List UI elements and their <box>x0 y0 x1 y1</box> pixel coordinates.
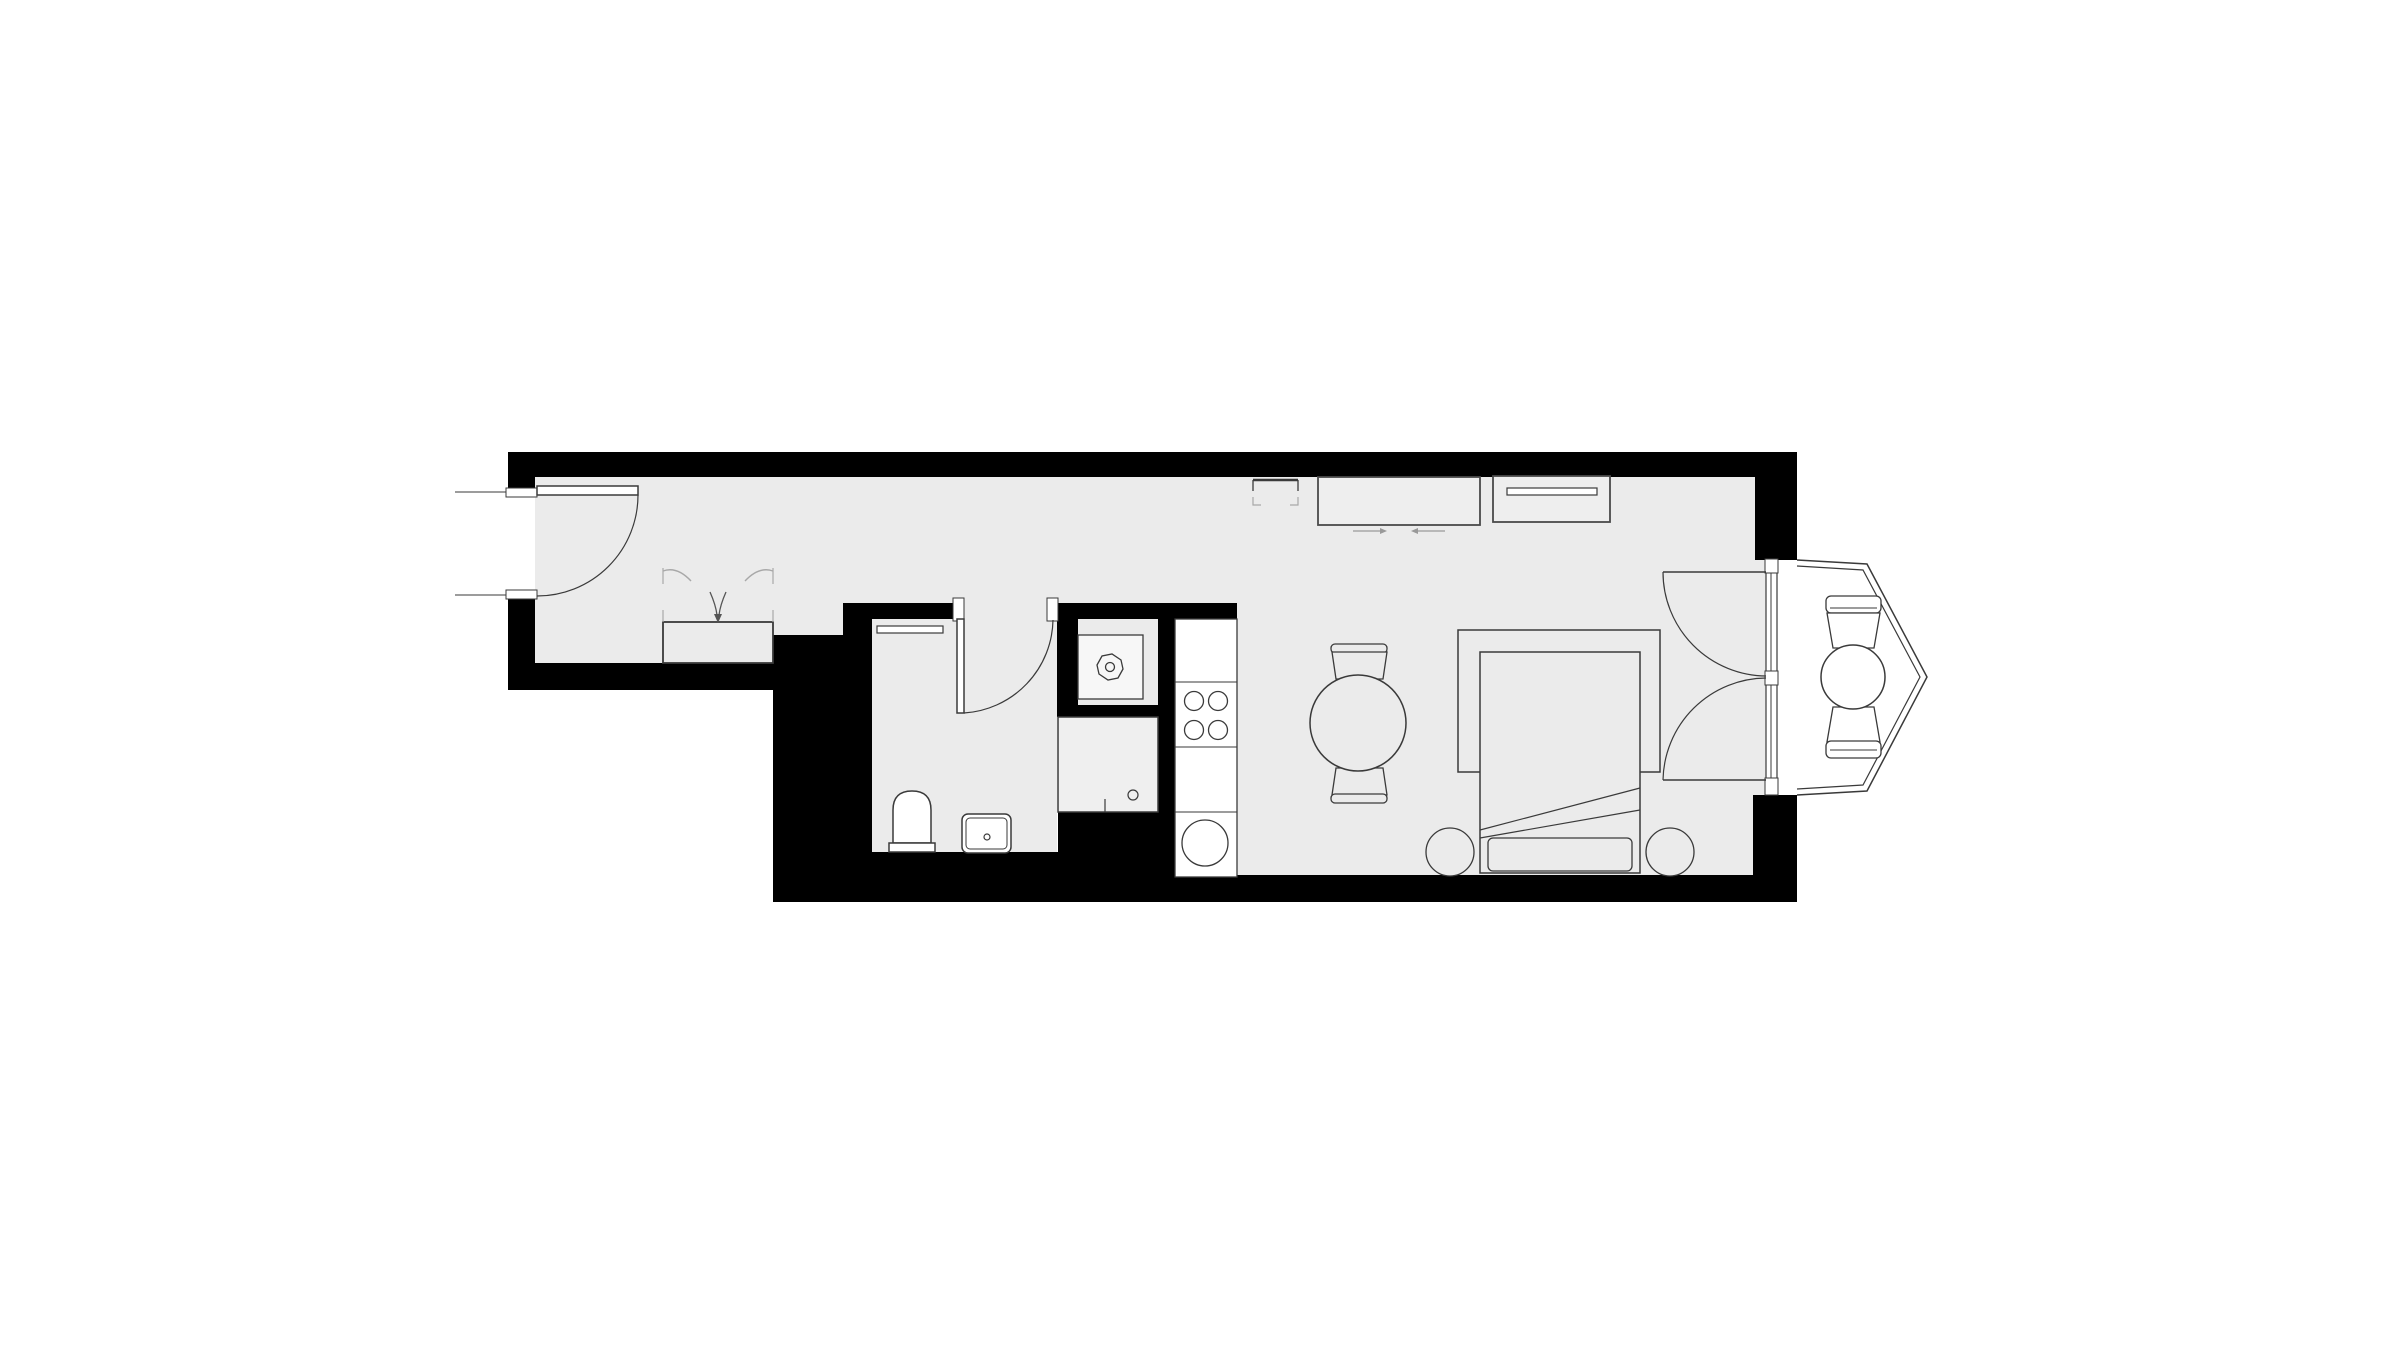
wall-shower-left <box>1057 619 1078 705</box>
bathroom-jamb-left <box>953 598 964 621</box>
tv <box>1507 488 1597 495</box>
nightstand-left <box>1426 828 1474 876</box>
entrance-jamb-top <box>506 488 537 497</box>
floor-plan-page <box>0 0 2400 1349</box>
tv-stand <box>1493 476 1610 522</box>
entrance-jamb-bottom <box>506 590 537 599</box>
toilet-bowl <box>893 791 931 843</box>
window-jamb-mid <box>1765 671 1778 685</box>
bath-shelf <box>877 626 943 633</box>
wall-bottom <box>1175 875 1753 902</box>
wall-hall-bottom <box>508 663 773 690</box>
wall-top <box>508 452 1797 477</box>
bathroom-jamb-right <box>1047 598 1058 621</box>
floor-plan-drawing <box>0 0 2400 1349</box>
wall-below-washing <box>1058 812 1158 852</box>
dining-chair-bottom-backrest <box>1331 794 1387 803</box>
balcony-chair-bottom-seat <box>1827 707 1880 742</box>
balcony-chair-top-seat <box>1827 613 1880 648</box>
wall-bath-top-right <box>1056 603 1237 619</box>
wall-top-right-corner <box>1755 452 1797 560</box>
shower-tray <box>1078 635 1143 699</box>
window-jamb-bottom <box>1765 778 1778 795</box>
dining-chair-bottom-seat <box>1332 768 1387 795</box>
wall-bath-bottom <box>843 852 1175 902</box>
wall-block-left-of-bath <box>773 635 843 902</box>
wall-right-column <box>1753 795 1797 902</box>
wall-shower-stub <box>1057 705 1158 717</box>
wall-bath-top-left <box>843 603 956 619</box>
dining-table <box>1310 675 1406 771</box>
toilet-tank <box>889 843 935 852</box>
balcony-chair-top-backrest <box>1826 596 1881 613</box>
wall-bath-left <box>843 603 872 852</box>
washing-machine <box>1058 717 1158 812</box>
bathroom-door-leaf <box>957 619 964 713</box>
window-jamb-top <box>1765 559 1778 573</box>
wardrobe <box>663 622 773 663</box>
wall-left-upper <box>508 452 535 493</box>
entrance-door-leaf <box>537 486 638 495</box>
nightstand-right <box>1646 828 1694 876</box>
balcony-table <box>1821 645 1885 709</box>
pillow <box>1488 838 1632 871</box>
sideboard <box>1318 477 1480 525</box>
